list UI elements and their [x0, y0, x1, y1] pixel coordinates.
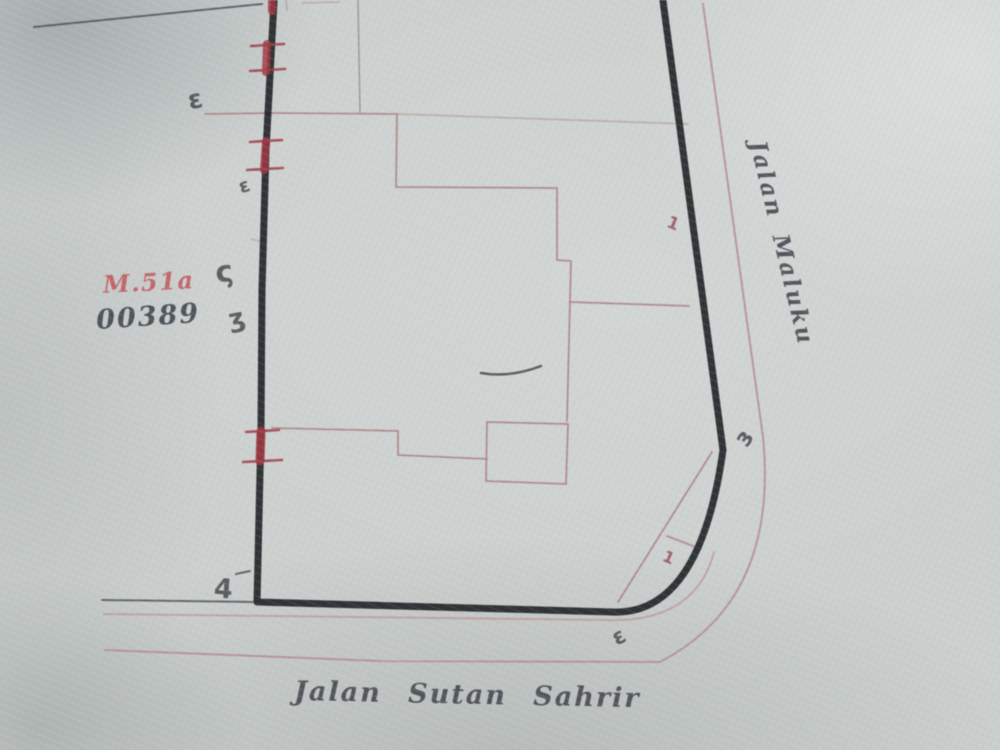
mark-4-tick	[236, 571, 250, 574]
handwritten-mark: ɛ	[236, 174, 253, 198]
street-edge-line-bottomleft	[102, 600, 257, 602]
parcel-line-vertical-top	[358, 0, 360, 112]
parcel-line-top-left	[205, 113, 397, 114]
top-edge-red-ticks	[286, 0, 340, 10]
handwritten-mark: ς	[213, 254, 235, 291]
monument-cap	[251, 44, 284, 46]
center-pencil-dash	[481, 366, 541, 374]
handwritten-mark: ɜ	[728, 424, 760, 452]
parcel-line-top-right	[397, 114, 688, 124]
handwritten-mark: 4	[213, 573, 234, 605]
monument-symbol	[266, 44, 267, 72]
handwritten-mark: ʒ	[226, 303, 248, 335]
building-outline-upper	[396, 114, 571, 421]
monument-cap	[243, 460, 282, 462]
street-edge-line-topleft	[34, 4, 262, 27]
handwritten-mark: ɛ	[185, 84, 205, 116]
monument-symbol	[264, 141, 266, 170]
handwritten-mark: ε	[608, 623, 631, 651]
sheet-code-label: M.51a	[101, 265, 195, 299]
parcel-line-mid-right	[570, 302, 689, 306]
handwritten-mark: 1	[660, 546, 678, 568]
map-canvas: ɛ ɛ ς ʒ 4 ɜ ε 1 1 M.51a 00389 Jalan Malu…	[0, 0, 1000, 750]
building-annex-rectangle	[486, 422, 568, 484]
sheet-number-label: 00389	[95, 298, 201, 336]
monument-cap	[250, 69, 285, 71]
monument-cap	[247, 168, 283, 170]
monument-symbol	[260, 431, 261, 461]
monument-cap	[250, 140, 282, 142]
monument-cap	[246, 430, 279, 432]
handwritten-mark: 1	[664, 212, 682, 235]
building-outline-lower	[272, 428, 487, 459]
scanned-map-page: ɛ ɛ ς ʒ 4 ɜ ε 1 1 M.51a 00389 Jalan Malu…	[0, 0, 1000, 750]
street-label-jalan-sutan-sahrir: Jalan Sutan Sahrir	[289, 676, 641, 714]
street-label-jalan-maluku: Jalan Maluku	[743, 134, 819, 348]
corner-chord-line	[618, 452, 712, 602]
plot-boundary-line	[257, 1, 723, 612]
